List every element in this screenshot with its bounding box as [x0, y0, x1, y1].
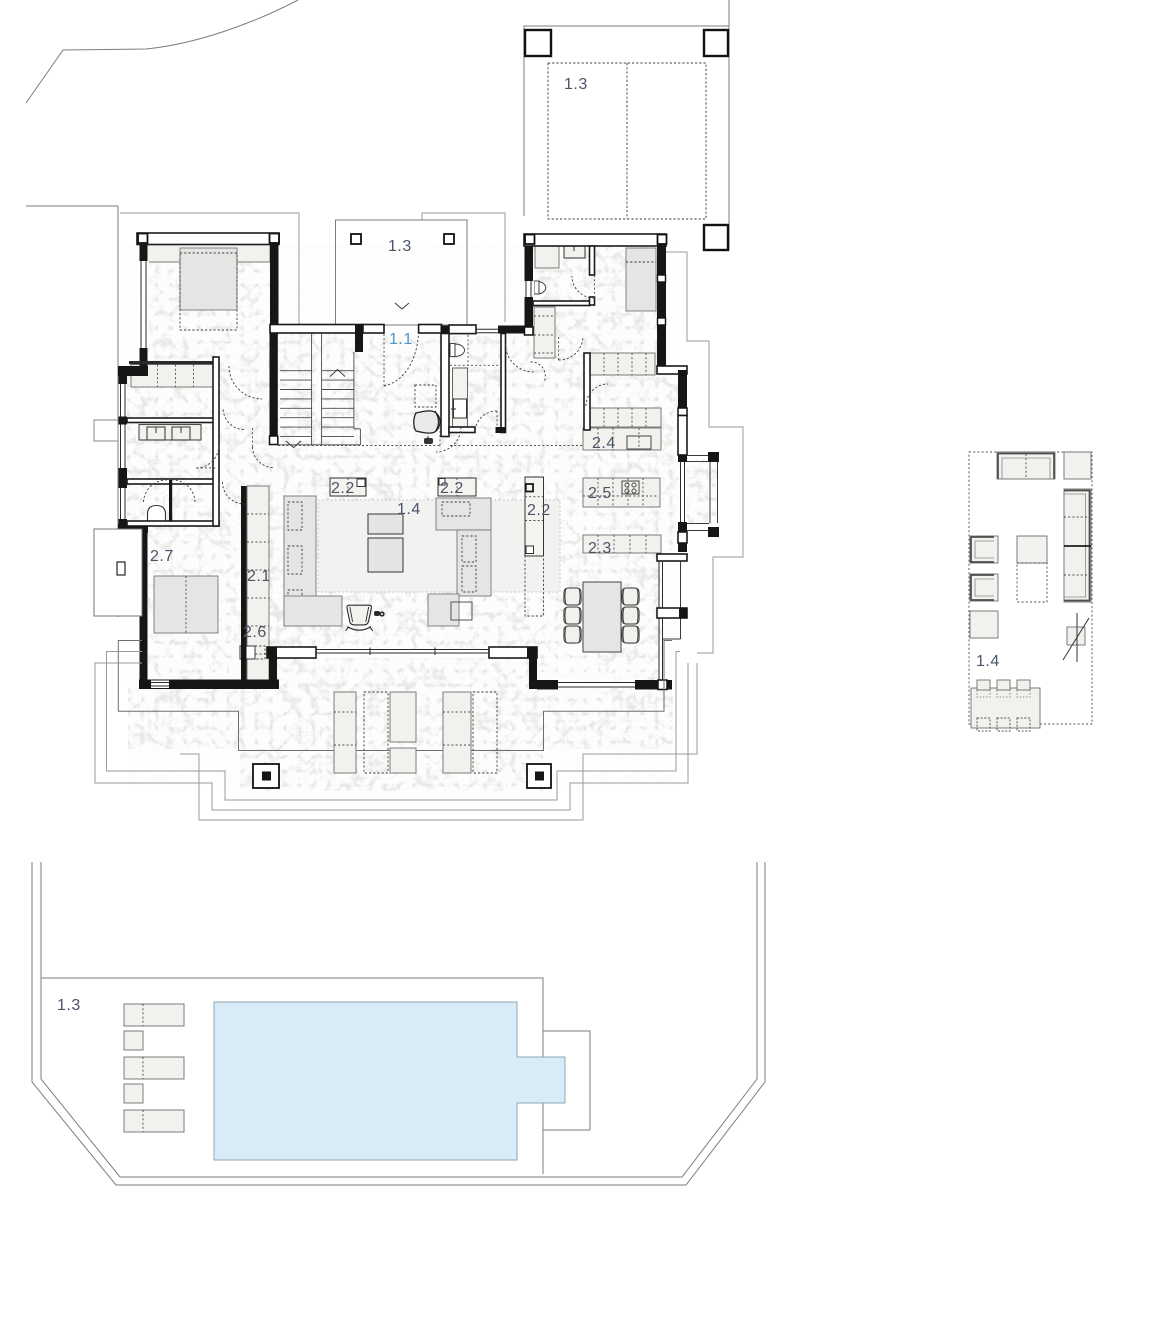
- svg-text:2.5: 2.5: [588, 485, 612, 502]
- svg-text:2.3: 2.3: [588, 540, 612, 557]
- svg-text:1.3: 1.3: [564, 76, 588, 93]
- svg-text:2.2: 2.2: [331, 480, 355, 497]
- svg-text:1.1: 1.1: [389, 331, 413, 348]
- svg-text:2.6: 2.6: [243, 624, 267, 641]
- svg-text:2.4: 2.4: [592, 435, 616, 452]
- svg-text:2.1: 2.1: [247, 568, 271, 585]
- svg-text:1.3: 1.3: [57, 997, 81, 1014]
- svg-text:1.4: 1.4: [976, 653, 1000, 670]
- svg-text:2.2: 2.2: [527, 502, 551, 519]
- svg-text:2.2: 2.2: [440, 480, 464, 497]
- svg-text:1.4: 1.4: [397, 501, 421, 518]
- svg-text:2.7: 2.7: [150, 548, 174, 565]
- svg-text:1.3: 1.3: [388, 238, 412, 255]
